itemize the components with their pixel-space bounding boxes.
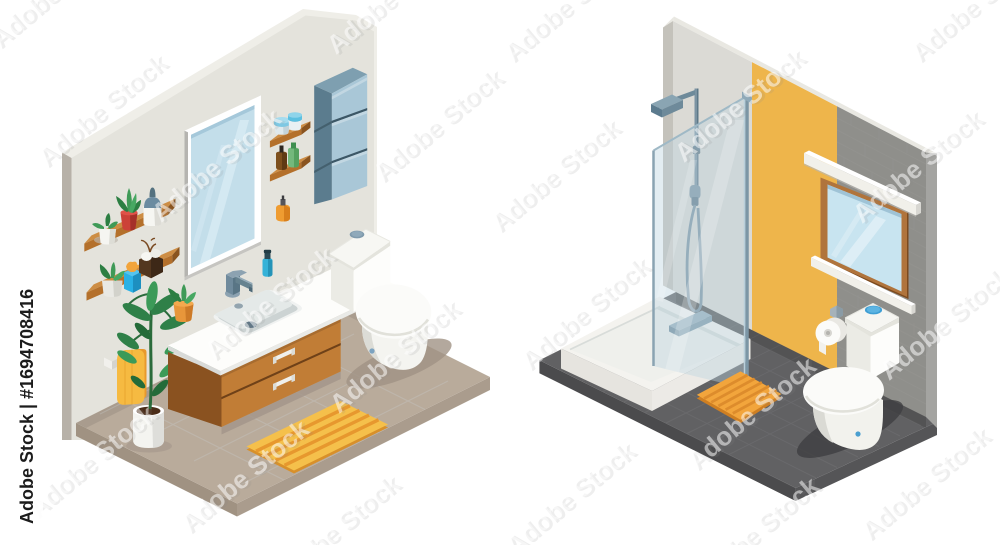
svg-text:Adobe Stock: Adobe Stock [499,435,640,545]
svg-text:Adobe Stock | #1694708416: Adobe Stock | #1694708416 [17,289,37,524]
svg-text:Adobe Stock: Adobe Stock [684,470,825,545]
svg-text:Adobe Stock: Adobe Stock [497,0,638,68]
svg-text:Adobe Stock: Adobe Stock [367,62,508,187]
svg-text:Adobe Stock: Adobe Stock [321,0,462,60]
svg-text:Adobe Stock: Adobe Stock [0,0,125,54]
svg-text:Adobe Stock: Adobe Stock [904,0,1000,68]
svg-text:Adobe Stock: Adobe Stock [484,112,625,237]
